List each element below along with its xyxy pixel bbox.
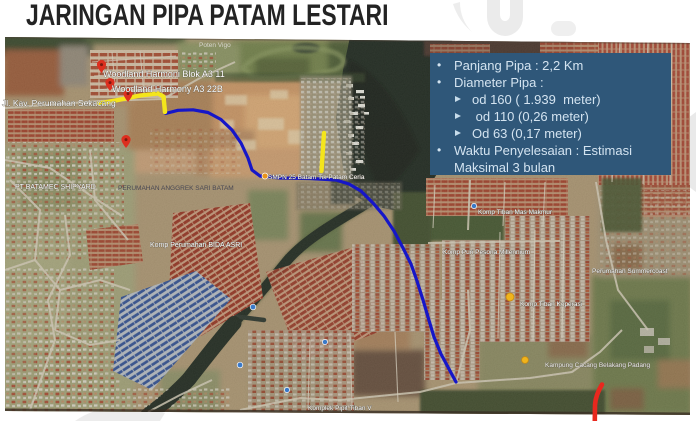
svg-text:Komp Tiban Mas Makmur: Komp Tiban Mas Makmur	[478, 209, 553, 216]
svg-text:SMPN 25 Batam Tik Patam Ceria: SMPN 25 Batam Tik Patam Ceria	[268, 174, 365, 181]
svg-text:PT BATAMEC SHIPYARD: PT BATAMEC SHIPYARD	[15, 184, 96, 191]
svg-text:Komp Tiban Koperasi: Komp Tiban Koperasi	[520, 301, 582, 308]
svg-text:Woodland Harmoni Blok A3 11: Woodland Harmoni Blok A3 11	[103, 69, 225, 79]
svg-text:Kampung Cacang Belakang Padang: Kampung Cacang Belakang Padang	[545, 362, 651, 369]
svg-text:Poten Vigo: Poten Vigo	[199, 42, 231, 49]
svg-text:Perumahan Summercoast: Perumahan Summercoast	[592, 268, 668, 275]
svg-text:Komp Perumahan BIDA ASRI: Komp Perumahan BIDA ASRI	[150, 242, 242, 249]
svg-text:Woodland Harmony A3 22B: Woodland Harmony A3 22B	[112, 84, 223, 94]
svg-text:Komp Puri Pesona Millennium: Komp Puri Pesona Millennium	[443, 249, 530, 256]
svg-text:Jl. Kav. Perumahan Sekacang: Jl. Kav. Perumahan Sekacang	[2, 98, 116, 108]
svg-text:PERUMAHAN ANGGREK SARI BATAM: PERUMAHAN ANGGREK SARI BATAM	[118, 185, 234, 192]
svg-text:Komplek Pipit Tiban V: Komplek Pipit Tiban V	[308, 405, 372, 412]
